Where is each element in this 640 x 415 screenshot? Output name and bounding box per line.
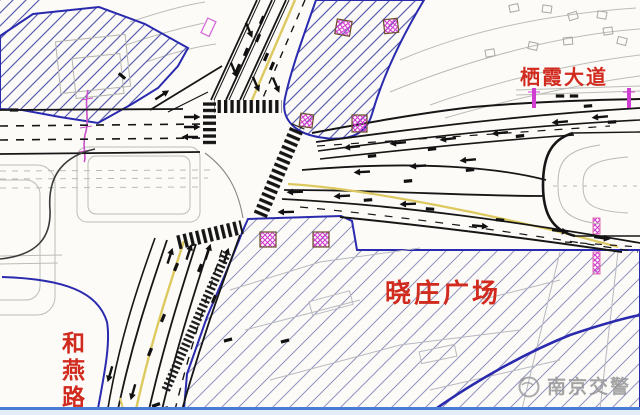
watermark-text: 南京交警 — [547, 372, 631, 399]
label-heyan-char-3: 路 — [62, 386, 85, 409]
police-logo-icon — [516, 373, 542, 399]
traffic-plan-image: 栖霞大道 晓庄广场 和 燕 路 南京交警 — [0, 0, 640, 415]
closure-zone-northwest — [0, 0, 188, 162]
label-heyan-road: 和 燕 路 — [62, 332, 85, 413]
background-buildings-ne — [485, 4, 627, 58]
crosswalk-south — [174, 220, 243, 249]
footer-light-strip — [0, 410, 640, 415]
plan-canvas — [0, 0, 640, 415]
label-qixia-avenue: 栖霞大道 — [520, 68, 608, 88]
road-west-arrows — [153, 88, 200, 141]
label-xiaozhuang-square: 晓庄广场 — [385, 280, 501, 306]
crosswalk-west — [203, 101, 216, 147]
crosswalk-east — [253, 123, 304, 219]
label-heyan-char-1: 和 — [62, 332, 85, 355]
crosswalk-north — [214, 100, 282, 113]
watermark: 南京交警 — [516, 372, 631, 399]
label-heyan-char-2: 燕 — [62, 359, 85, 382]
